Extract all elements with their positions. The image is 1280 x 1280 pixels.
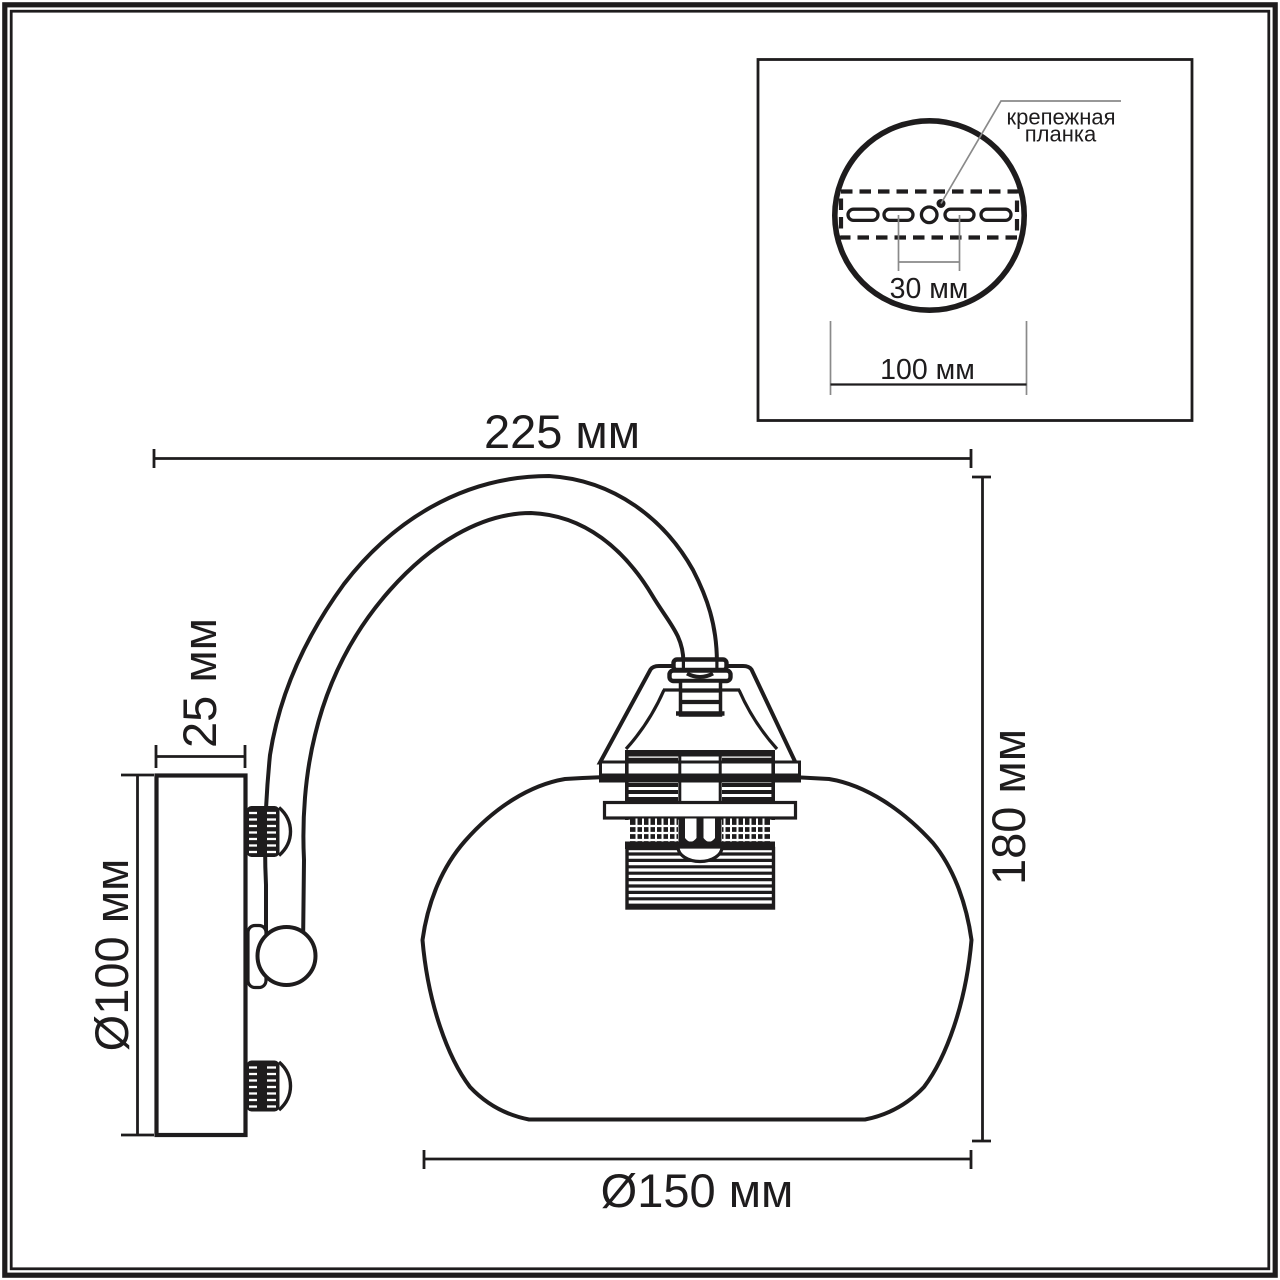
svg-text:100 мм: 100 мм bbox=[880, 354, 975, 386]
svg-text:225 мм: 225 мм bbox=[484, 405, 640, 458]
svg-text:Ø150 мм: Ø150 мм bbox=[601, 1164, 794, 1217]
svg-text:Ø100 мм: Ø100 мм bbox=[85, 859, 138, 1052]
svg-text:30 мм: 30 мм bbox=[890, 273, 969, 305]
svg-text:180 мм: 180 мм bbox=[982, 729, 1035, 885]
svg-text:25 мм: 25 мм bbox=[173, 618, 226, 748]
svg-text:планка: планка bbox=[1025, 122, 1097, 147]
